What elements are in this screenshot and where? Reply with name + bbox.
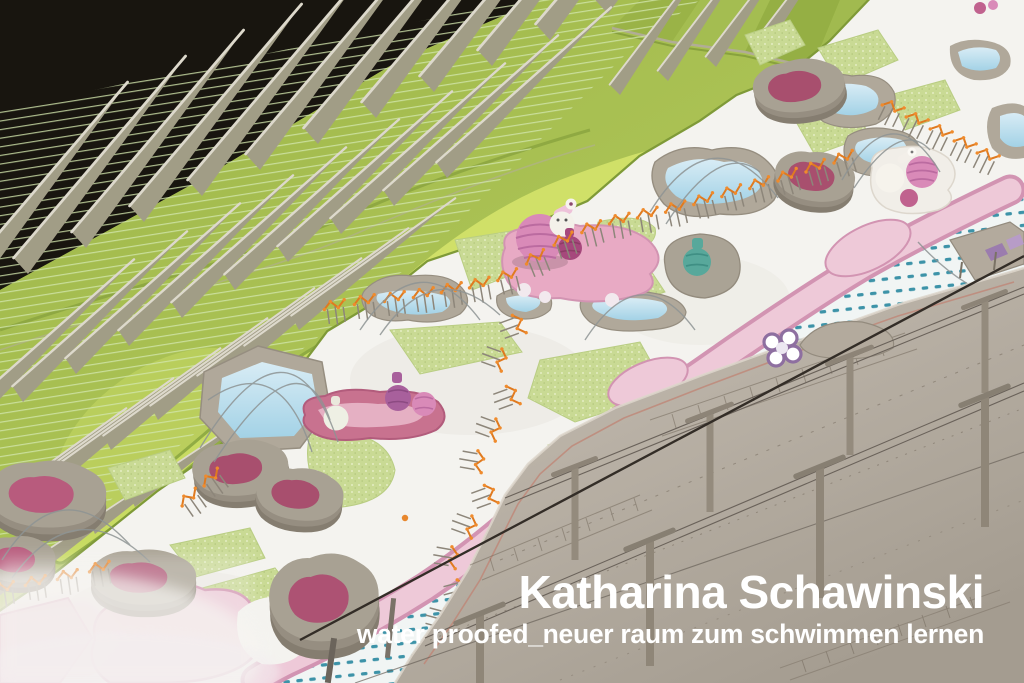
flower-float: [764, 330, 801, 366]
foreground-blur: [0, 555, 280, 683]
designer-name: Katharina Schawinski: [357, 568, 984, 616]
project-title: water proofed_neuer raum zum schwimmen l…: [357, 619, 984, 649]
teal-bottle-rock: [664, 234, 740, 298]
caption-overlay: Katharina Schawinski water proofed_neuer…: [357, 568, 984, 649]
model-photo: Katharina Schawinski water proofed_neuer…: [0, 0, 1024, 683]
buoy: [402, 515, 408, 521]
